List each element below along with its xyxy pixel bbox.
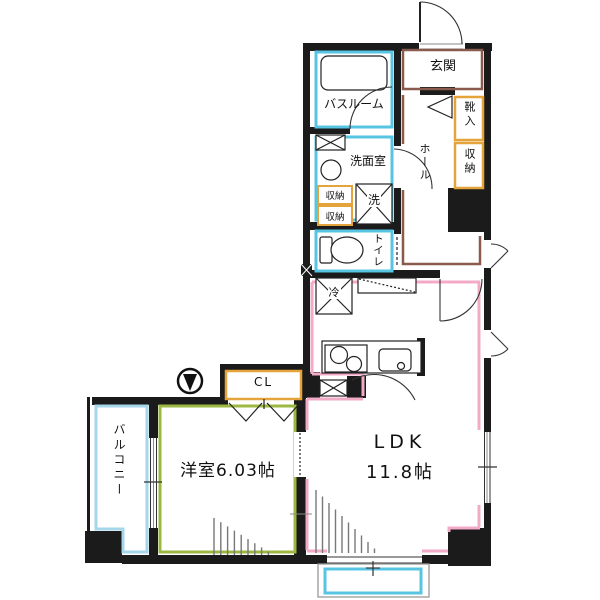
kitchen-sink-icon <box>379 349 411 371</box>
toilet-icon <box>320 237 363 263</box>
western-room-floor-hatch <box>214 518 268 555</box>
wall-vent-icon <box>301 264 312 276</box>
entrance-door-icon <box>420 2 462 44</box>
pipe-space-icon <box>320 380 347 396</box>
casement-window-upper <box>491 244 508 268</box>
bathroom-label: バスルーム <box>316 98 392 111</box>
fridge-label: 冷 <box>323 287 345 299</box>
washer-label: 洗 <box>362 194 386 207</box>
shoebox-label: 靴入 <box>461 101 477 129</box>
ldk-outline <box>307 282 480 551</box>
western-room-label: 洋室6.03帖 <box>158 462 298 481</box>
storage-tall-label: 収納 <box>461 148 477 176</box>
bay-window <box>318 557 429 597</box>
entry-hall-door-leaf <box>428 96 452 118</box>
ldk-label: LDK <box>355 432 445 453</box>
genkan-label: 玄関 <box>415 60 471 74</box>
folding-door-icons <box>229 399 300 421</box>
ldk-floor-hatch <box>316 490 375 553</box>
ldk-size-label: 11.8帖 <box>345 463 455 483</box>
duct-box-icon <box>316 135 345 150</box>
storage-b-label: 収納 <box>318 206 352 225</box>
wash-sink-icon <box>321 160 341 180</box>
ldk-right-window <box>478 432 497 503</box>
casement-window-lower <box>491 332 508 356</box>
floor-plan: 玄関 バスルーム 洗面室 収納 収納 洗 トイレ ホール 靴入 収納 冷 CL … <box>0 0 600 600</box>
floor-plan-drawing <box>0 0 600 600</box>
ldk-entry-door-arc <box>440 279 482 321</box>
storage-a-label: 収納 <box>318 186 352 204</box>
closet-label: CL <box>226 376 301 389</box>
balcony-label: バルコニー <box>111 423 128 498</box>
meter-valve-icon <box>178 369 202 393</box>
washroom-label: 洗面室 <box>343 155 393 168</box>
hall-label: ホール <box>416 143 432 182</box>
bathtub-icon <box>321 56 387 90</box>
ldk-door-opening <box>440 269 483 279</box>
overhead-cabinet-icon <box>358 278 416 293</box>
toilet-label: トイレ <box>371 233 386 268</box>
kitchen-counter <box>322 341 421 373</box>
